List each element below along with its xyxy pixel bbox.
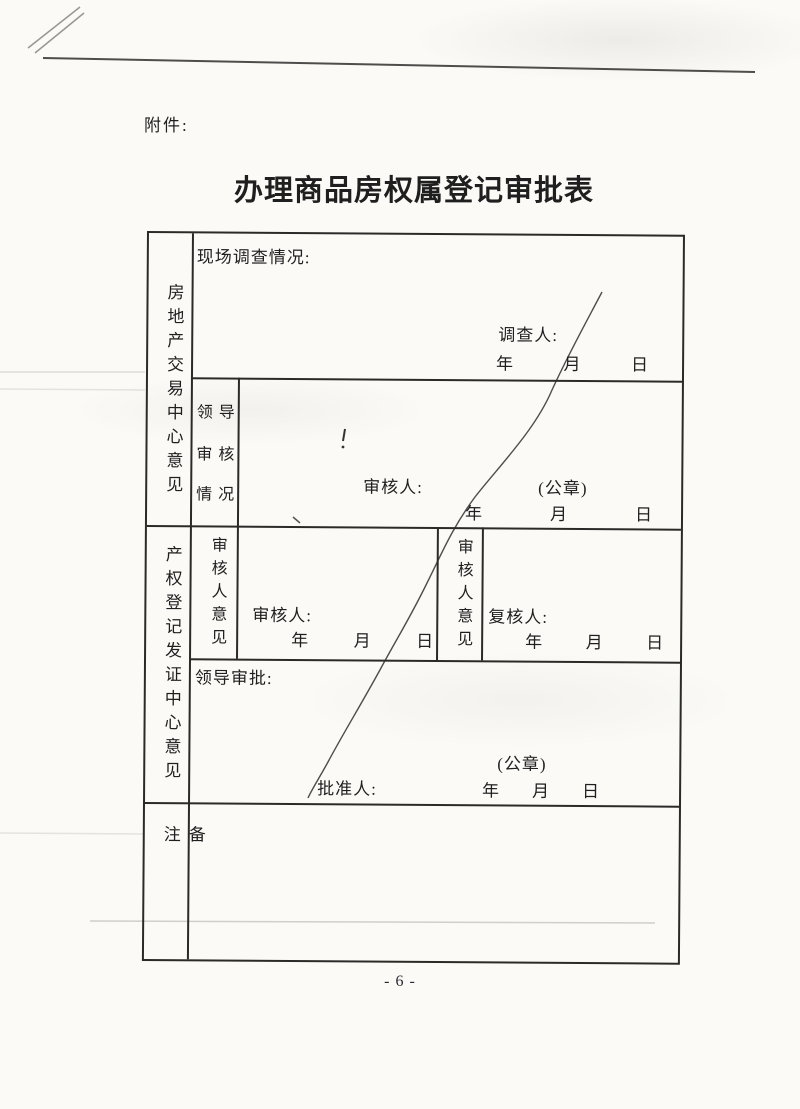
section-label-trade-center: 房地产交易中心意见: [160, 283, 187, 499]
year-label: 年: [496, 349, 513, 374]
investigator-label: 调查人:: [498, 320, 558, 345]
leader-review-label-line3: 情况: [196, 480, 240, 504]
reviewer-label-trade: 审核人:: [363, 473, 423, 498]
scan-streak: [0, 389, 145, 390]
seal-label-trade: (公章): [538, 474, 588, 499]
page-title: 办理商品房权属登记审批表: [147, 167, 681, 209]
day-label: 日: [631, 350, 648, 375]
year-label: 年: [291, 626, 308, 651]
scanned-page: 附件: 办理商品房权属登记审批表 房地产交易中心意见 现场调查情况: 调查人: …: [0, 0, 800, 1109]
seal-label-registration: (公章): [497, 749, 547, 774]
leader-approval-field-label: 领导审批:: [195, 663, 273, 689]
section-label-remarks: 备注: [157, 825, 208, 959]
corner-scribble-mark: [28, 7, 84, 53]
year-label: 年: [482, 776, 499, 801]
approver-label: 批准人:: [317, 774, 377, 799]
site-survey-field-label: 现场调查情况:: [197, 242, 311, 268]
table-line: [191, 377, 682, 382]
site-survey-date-line: 年 月 日: [496, 349, 648, 375]
leader-review-date-line: 年 月 日: [465, 499, 652, 525]
table-line: [481, 527, 483, 660]
scan-streak: [0, 833, 145, 834]
month-label: 月: [564, 350, 581, 375]
section-label-registration-center: 产权登记发证中心意见: [158, 545, 185, 785]
table-line: [436, 527, 438, 660]
attachment-label: 附件:: [144, 111, 189, 136]
reviewer-left-date-line: 年 月 日: [291, 626, 433, 652]
day-label: 日: [635, 500, 652, 525]
reviewer-opinion-right-label: 审核人意见: [450, 538, 475, 653]
reviewer-right-date-line: 年 月 日: [525, 628, 663, 654]
reviewer-label-left: 审核人:: [252, 601, 312, 626]
day-label: 日: [582, 777, 599, 802]
rechecker-label: 复核人:: [488, 602, 548, 627]
approval-form-table: 房地产交易中心意见 现场调查情况: 调查人: 年 月 日 领导 审核 情况 审核…: [142, 231, 685, 965]
table-line: [147, 525, 681, 530]
leader-approval-date-line: 年 月 日: [482, 776, 599, 802]
table-line: [189, 658, 680, 663]
month-label: 月: [532, 777, 549, 802]
letterhead-rule: [43, 58, 755, 72]
year-label: 年: [465, 499, 482, 524]
day-label: 日: [416, 627, 433, 652]
month-label: 月: [354, 626, 371, 651]
reviewer-opinion-left-label: 审核人意见: [204, 536, 229, 651]
leader-review-label-line2: 审核: [196, 440, 240, 464]
month-label: 月: [586, 628, 603, 653]
leader-review-label-line1: 领导: [197, 398, 241, 422]
month-label: 月: [550, 500, 567, 525]
page-number: - 6 -: [0, 973, 800, 991]
year-label: 年: [525, 628, 542, 653]
table-line: [145, 802, 679, 807]
day-label: 日: [646, 628, 663, 653]
